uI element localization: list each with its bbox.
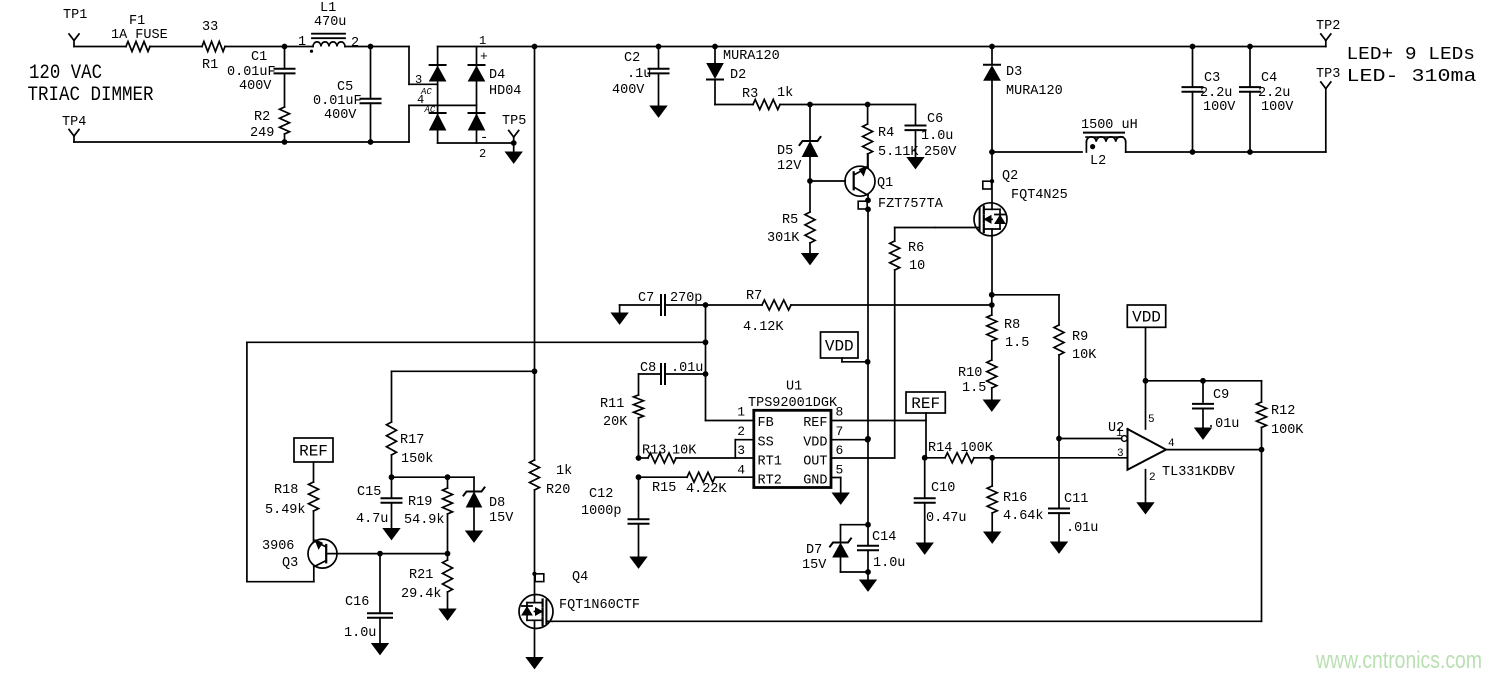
svg-text:1k: 1k	[777, 86, 793, 101]
svg-text:C14: C14	[872, 530, 896, 545]
svg-text:R7: R7	[746, 289, 762, 304]
svg-text:C8: C8	[640, 361, 656, 376]
svg-text:3: 3	[1117, 448, 1124, 460]
svg-text:-: -	[480, 130, 488, 146]
svg-text:R1: R1	[202, 58, 218, 73]
svg-text:400V: 400V	[324, 108, 357, 123]
svg-text:www.cntronics.com: www.cntronics.com	[1315, 647, 1482, 674]
svg-text:1: 1	[298, 35, 306, 50]
svg-text:GND: GND	[803, 474, 827, 489]
svg-text:301K: 301K	[767, 231, 800, 246]
svg-text:4: 4	[1168, 438, 1175, 450]
svg-text:1.0u: 1.0u	[921, 129, 953, 144]
svg-text:TP3: TP3	[1316, 67, 1340, 82]
svg-text:R16: R16	[1003, 491, 1027, 506]
svg-text:1.5: 1.5	[962, 381, 986, 396]
svg-text:R8: R8	[1004, 318, 1020, 333]
svg-text:D8: D8	[489, 496, 505, 511]
svg-text:FB: FB	[758, 416, 774, 431]
svg-text:R9: R9	[1072, 330, 1088, 345]
svg-text:F1: F1	[129, 14, 145, 29]
svg-text:2: 2	[737, 424, 745, 439]
svg-text:400V: 400V	[612, 83, 645, 98]
svg-text:150k: 150k	[401, 452, 433, 467]
svg-text:REF: REF	[299, 443, 328, 461]
svg-text:C11: C11	[1064, 492, 1088, 507]
svg-text:1: 1	[1116, 428, 1123, 440]
svg-text:C12: C12	[589, 487, 613, 502]
svg-text:15V: 15V	[489, 511, 514, 526]
svg-text:R2: R2	[254, 110, 270, 125]
svg-text:TPS92001DGK: TPS92001DGK	[748, 396, 838, 411]
svg-text:D5: D5	[777, 144, 793, 159]
svg-text:R4: R4	[878, 126, 894, 141]
svg-text:R6: R6	[908, 241, 924, 256]
svg-text:250V: 250V	[924, 145, 957, 160]
svg-text:C9: C9	[1213, 388, 1229, 403]
svg-text:5.49k: 5.49k	[265, 503, 306, 518]
svg-text:0.47u: 0.47u	[926, 511, 967, 526]
svg-text:Q1: Q1	[877, 176, 893, 191]
svg-text:5: 5	[836, 463, 844, 478]
svg-text:L1: L1	[320, 1, 336, 16]
svg-text:1: 1	[737, 405, 745, 420]
svg-text:C6: C6	[927, 112, 943, 127]
svg-text:D2: D2	[730, 68, 746, 83]
svg-text:12V: 12V	[777, 159, 802, 174]
svg-text:C3: C3	[1204, 71, 1220, 86]
svg-text:6: 6	[836, 443, 844, 458]
svg-text:270p: 270p	[670, 291, 702, 306]
svg-text:R15: R15	[652, 481, 676, 496]
svg-text:7: 7	[836, 424, 844, 439]
svg-text:D4: D4	[489, 68, 505, 83]
svg-text:2: 2	[1149, 472, 1156, 484]
svg-text:C2: C2	[624, 51, 640, 66]
svg-text:OUT: OUT	[803, 455, 827, 470]
svg-text:400V: 400V	[239, 79, 272, 94]
svg-text:C15: C15	[357, 485, 381, 500]
svg-text:4: 4	[737, 463, 745, 478]
svg-text:1500 uH: 1500 uH	[1081, 118, 1138, 133]
svg-text:R14 100K: R14 100K	[928, 441, 994, 456]
svg-text:C5: C5	[337, 80, 353, 95]
svg-text:2: 2	[479, 147, 486, 161]
svg-text:C16: C16	[345, 595, 369, 610]
svg-text:3: 3	[737, 443, 745, 458]
svg-text:U1: U1	[786, 380, 802, 395]
svg-text:54.9k: 54.9k	[404, 513, 445, 528]
svg-text:R3: R3	[742, 87, 758, 102]
svg-text:100V: 100V	[1203, 100, 1236, 115]
svg-text:TL331KDBV: TL331KDBV	[1162, 465, 1236, 480]
svg-text:C1: C1	[251, 50, 267, 65]
svg-text:4.12K: 4.12K	[743, 320, 784, 335]
svg-text:RT1: RT1	[758, 455, 782, 470]
svg-text:RT2: RT2	[758, 474, 782, 489]
svg-text:1.0u: 1.0u	[873, 556, 905, 571]
svg-text:1.5: 1.5	[1005, 336, 1029, 351]
svg-text:3906: 3906	[262, 539, 294, 554]
svg-text:2.2u: 2.2u	[1200, 86, 1232, 101]
svg-text:470u: 470u	[314, 15, 346, 30]
svg-text:Q2: Q2	[1002, 169, 1018, 184]
svg-text:SS: SS	[758, 435, 774, 450]
svg-text:TP2: TP2	[1316, 19, 1340, 34]
svg-text:R19: R19	[408, 495, 432, 510]
svg-text:4.7u: 4.7u	[356, 512, 388, 527]
svg-text:+: +	[480, 49, 488, 64]
svg-text:MURA120: MURA120	[723, 49, 780, 64]
svg-text:R5: R5	[782, 213, 798, 228]
svg-text:10: 10	[909, 259, 925, 274]
svg-text:5: 5	[1148, 414, 1155, 426]
svg-text:D7: D7	[806, 543, 822, 558]
svg-text:MURA120: MURA120	[1006, 84, 1063, 99]
svg-text:D3: D3	[1006, 65, 1022, 80]
svg-text:R11: R11	[600, 397, 624, 412]
svg-text:LED- 310ma: LED- 310ma	[1347, 67, 1477, 87]
svg-text:L2: L2	[1090, 154, 1106, 169]
svg-text:2: 2	[351, 36, 359, 51]
svg-text:R21: R21	[409, 568, 433, 583]
svg-text:1k: 1k	[556, 464, 572, 479]
svg-text:FQT1N60CTF: FQT1N60CTF	[559, 598, 640, 613]
svg-text:4.64k: 4.64k	[1003, 509, 1044, 524]
svg-text:Q4: Q4	[572, 570, 588, 585]
svg-text:FZT757TA: FZT757TA	[878, 197, 944, 212]
svg-text:TP4: TP4	[62, 115, 86, 130]
svg-text:0.01uF: 0.01uF	[227, 65, 276, 80]
svg-text:.1u: .1u	[627, 67, 651, 82]
svg-text:REF: REF	[911, 395, 940, 413]
svg-text:VDD: VDD	[825, 338, 854, 356]
svg-text:Q3: Q3	[282, 556, 298, 571]
svg-text:R18: R18	[274, 483, 298, 498]
svg-text:100K: 100K	[1271, 423, 1304, 438]
svg-text:FQT4N25: FQT4N25	[1011, 188, 1068, 203]
svg-text:R20: R20	[546, 483, 570, 498]
svg-text:R13: R13	[642, 444, 666, 459]
svg-text:33: 33	[202, 20, 218, 35]
svg-text:20K: 20K	[603, 415, 628, 430]
svg-text:VDD: VDD	[803, 435, 827, 450]
svg-text:3: 3	[415, 73, 422, 87]
svg-text:29.4k: 29.4k	[401, 587, 442, 602]
svg-text:TP1: TP1	[63, 8, 87, 23]
svg-text:R12: R12	[1271, 404, 1295, 419]
svg-text:TRIAC DIMMER: TRIAC DIMMER	[28, 84, 154, 107]
svg-text:VDD: VDD	[1132, 309, 1161, 327]
svg-text:0.01uF: 0.01uF	[313, 94, 362, 109]
svg-text:.01u: .01u	[1066, 521, 1098, 536]
svg-text:R17: R17	[400, 433, 424, 448]
svg-text:249: 249	[250, 126, 274, 141]
svg-text:100V: 100V	[1261, 100, 1294, 115]
svg-text:REF: REF	[803, 416, 827, 431]
svg-text:C7: C7	[638, 291, 654, 306]
svg-text:R10: R10	[958, 366, 982, 381]
svg-text:15V: 15V	[802, 558, 827, 573]
svg-text:.01u: .01u	[671, 361, 703, 376]
svg-text:120 VAC: 120 VAC	[29, 62, 102, 85]
svg-text:C10: C10	[931, 481, 955, 496]
svg-text:.01u: .01u	[1207, 417, 1239, 432]
svg-text:8: 8	[836, 405, 844, 420]
svg-text:4.22K: 4.22K	[686, 482, 727, 497]
svg-text:LED+ 9 LEDs: LED+ 9 LEDs	[1347, 45, 1476, 65]
svg-text:2.2u: 2.2u	[1258, 86, 1290, 101]
svg-text:1.0u: 1.0u	[344, 626, 376, 641]
svg-text:HD04: HD04	[489, 84, 521, 99]
svg-text:1: 1	[479, 34, 486, 48]
svg-text:AC: AC	[420, 87, 432, 97]
svg-text:TP5: TP5	[502, 114, 526, 129]
svg-text:C4: C4	[1261, 71, 1277, 86]
svg-text:1000p: 1000p	[581, 504, 622, 519]
svg-text:1A FUSE: 1A FUSE	[111, 28, 168, 43]
svg-text:10K: 10K	[672, 444, 697, 459]
svg-text:10K: 10K	[1072, 348, 1097, 363]
